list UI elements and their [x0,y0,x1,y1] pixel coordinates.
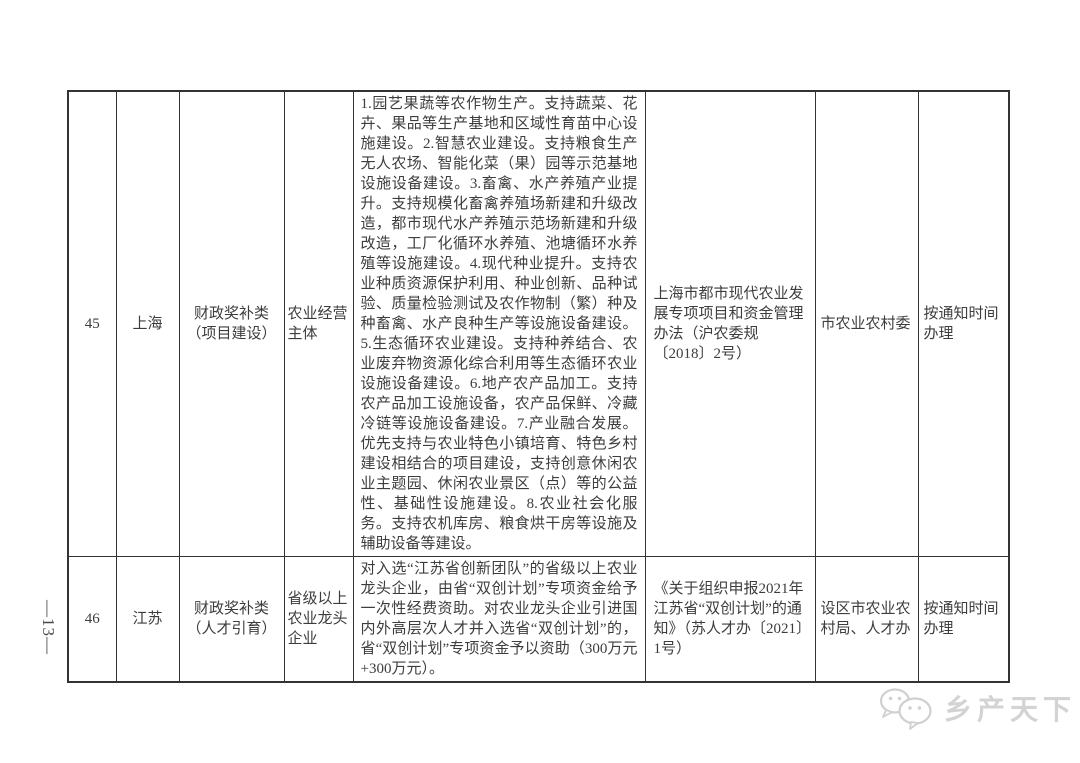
measures-cell: 1.园艺果蔬等农作物生产。支持蔬菜、花卉、果品等生产基地和区域性育苗中心设施建设… [353,91,645,557]
policy-basis-cell: 《关于组织申报2021年江苏省“双创计划”的通知》（苏人才办〔2021〕1号） [645,557,815,683]
table-row: 45 上海 财政奖补类（项目建设） 农业经营主体 1.园艺果蔬等农作物生产。支持… [68,91,1009,557]
wechat-chat-bubbles-icon [878,686,934,730]
page-number: —13— [38,600,58,655]
schedule-cell: 按通知时间办理 [918,557,1009,683]
target-cell: 农业经营主体 [284,91,353,557]
watermark-text: 乡产天下 [944,688,1076,728]
region-cell: 江苏 [116,557,179,683]
row-number-cell: 46 [68,557,116,683]
target-cell: 省级以上农业龙头企业 [284,557,353,683]
policy-table: 45 上海 财政奖补类（项目建设） 农业经营主体 1.园艺果蔬等农作物生产。支持… [67,90,1010,683]
category-cell: 财政奖补类（项目建设） [179,91,284,557]
category-cell: 财政奖补类（人才引育） [179,557,284,683]
document-page: 45 上海 财政奖补类（项目建设） 农业经营主体 1.园艺果蔬等农作物生产。支持… [0,0,1080,763]
region-cell: 上海 [116,91,179,557]
department-cell: 设区市农业农村局、人才办 [815,557,918,683]
department-cell: 市农业农村委 [815,91,918,557]
row-number-cell: 45 [68,91,116,557]
policy-basis-cell: 上海市都市现代农业发展专项项目和资金管理办法（沪农委规〔2018〕2号） [645,91,815,557]
table-row: 46 江苏 财政奖补类（人才引育） 省级以上农业龙头企业 对入选“江苏省创新团队… [68,557,1009,683]
measures-cell: 对入选“江苏省创新团队”的省级以上农业龙头企业，由省“双创计划”专项资金给予一次… [353,557,645,683]
watermark: 乡产天下 [878,686,1076,730]
schedule-cell: 按通知时间办理 [918,91,1009,557]
